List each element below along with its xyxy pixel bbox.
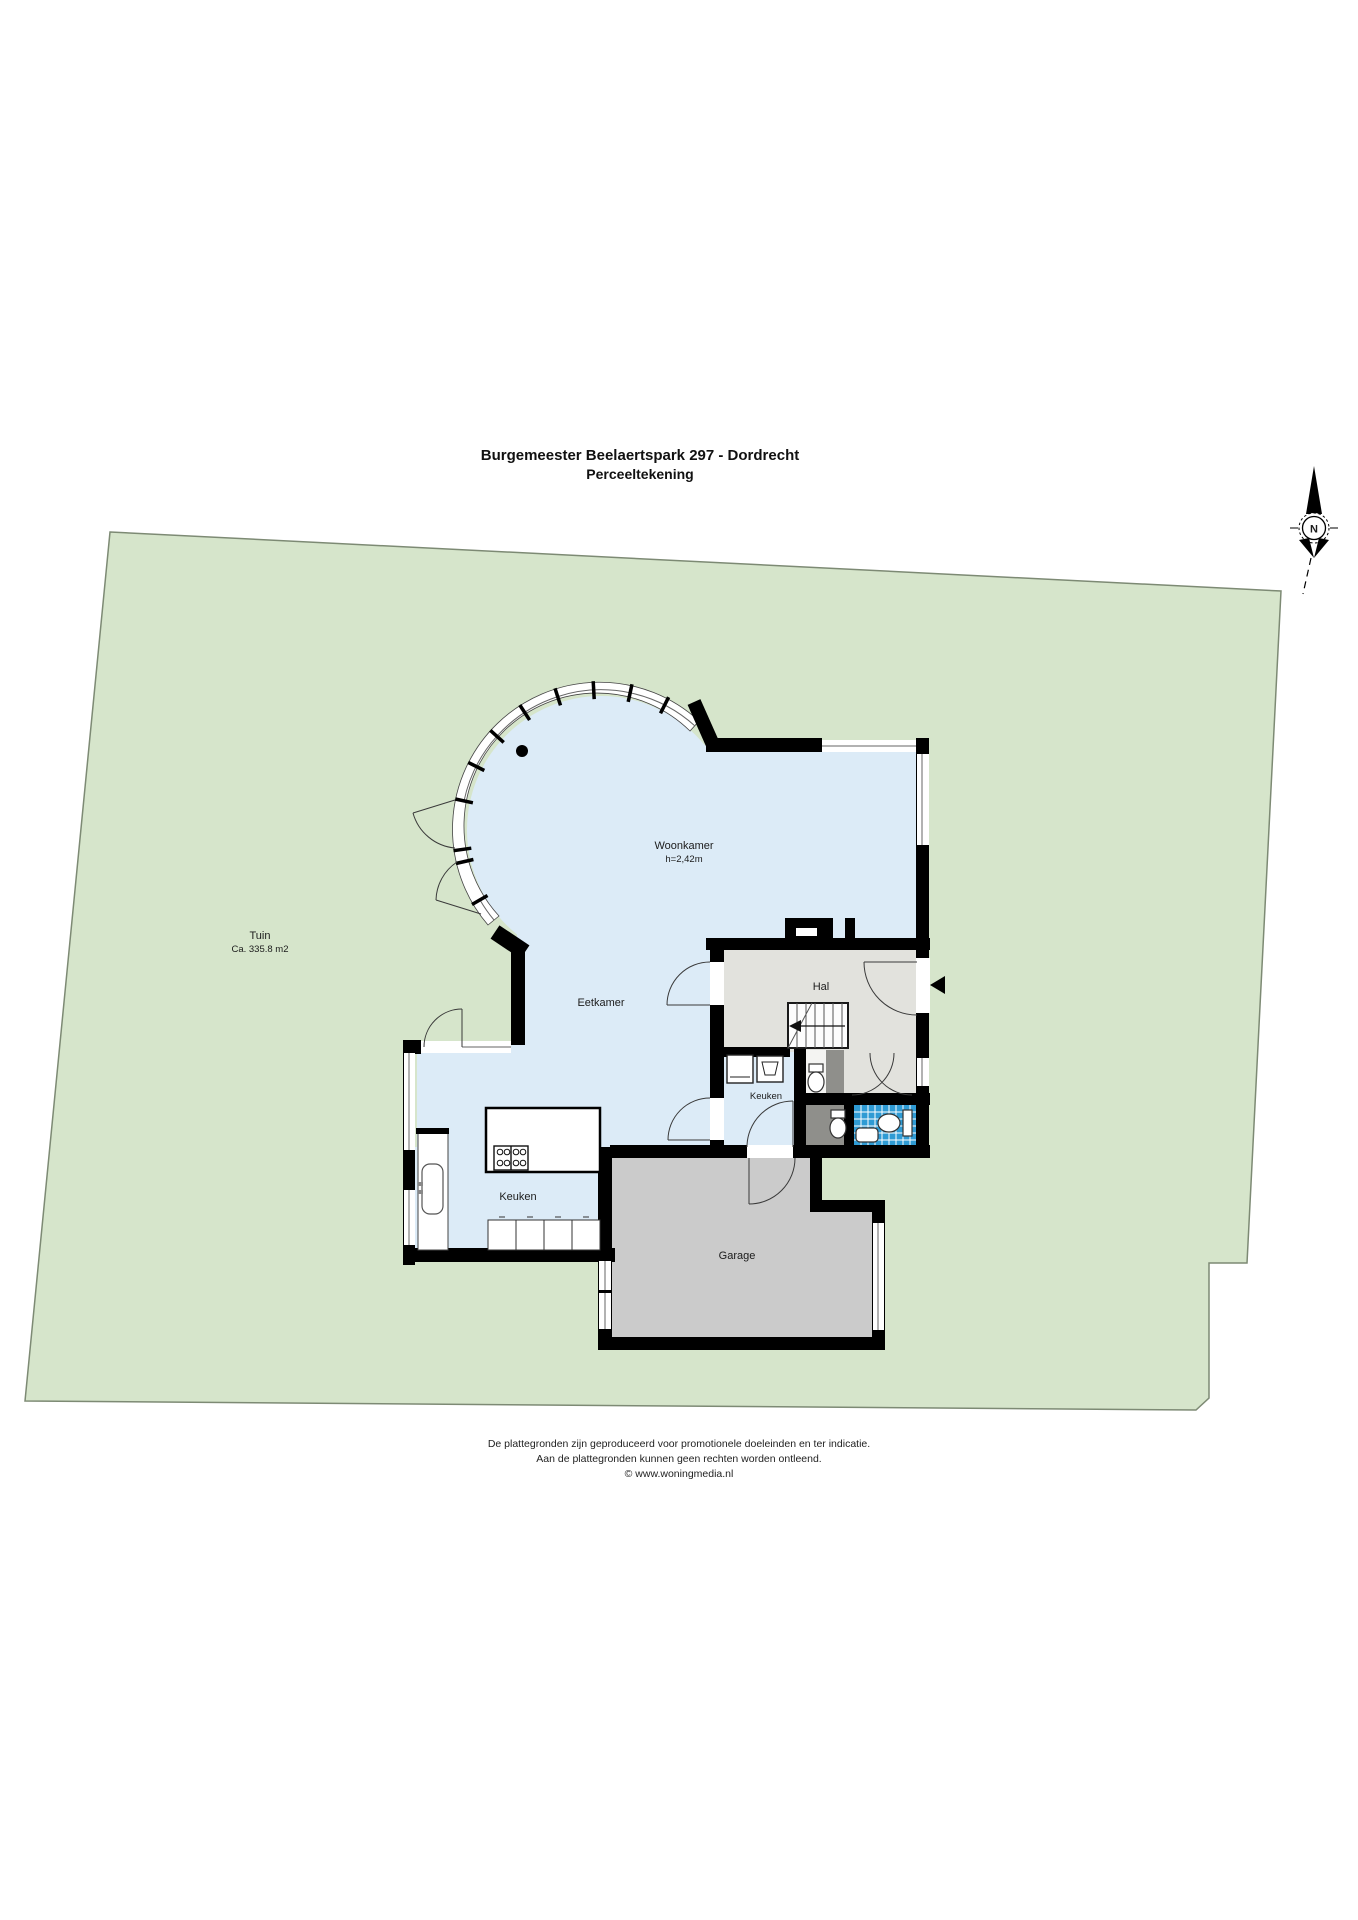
compass-north-icon: N bbox=[1290, 466, 1338, 594]
room-woonkamer bbox=[517, 745, 917, 945]
room-eetkamer-upper bbox=[517, 938, 710, 1052]
kitchen-island bbox=[486, 1108, 600, 1172]
closet-1 bbox=[826, 1050, 844, 1095]
label-woonkamer: Woonkamer bbox=[654, 840, 713, 852]
drawing-type-title: Perceeltekening bbox=[0, 465, 1280, 483]
label-keuken: Keuken bbox=[499, 1191, 536, 1203]
label-tuin-area: Ca. 335.8 m2 bbox=[231, 944, 288, 955]
floorplan-page: Burgemeester Beelaertspark 297 - Dordrec… bbox=[0, 0, 1358, 1920]
disclaimer-line-1: De plattegronden zijn geproduceerd voor … bbox=[0, 1437, 1358, 1452]
stub-notch bbox=[796, 928, 817, 936]
column-dot bbox=[516, 745, 528, 757]
kitchen-counter bbox=[416, 1128, 449, 1250]
basin-icon bbox=[762, 1062, 778, 1075]
stairs bbox=[788, 1003, 848, 1048]
disclaimer: De plattegronden zijn geproduceerd voor … bbox=[0, 1437, 1358, 1482]
sink-icon bbox=[422, 1164, 443, 1214]
floorplan-svg: Tuin Ca. 335.8 m2 Woonkamer h=2,42m Eetk… bbox=[0, 0, 1358, 1920]
kitchen-cabinets bbox=[488, 1217, 600, 1250]
compass-label: N bbox=[1310, 524, 1318, 536]
label-hal: Hal bbox=[813, 981, 830, 993]
shower-tray-icon bbox=[856, 1128, 878, 1142]
address-title: Burgemeester Beelaertspark 297 - Dordrec… bbox=[0, 446, 1280, 465]
label-woonkamer-height: h=2,42m bbox=[665, 854, 702, 865]
hob-icon bbox=[494, 1146, 528, 1170]
disclaimer-line-2: Aan de plattegronden kunnen geen rechten… bbox=[0, 1452, 1358, 1467]
label-eetkamer: Eetkamer bbox=[577, 997, 624, 1009]
disclaimer-line-3: © www.woningmedia.nl bbox=[0, 1467, 1358, 1482]
label-keuken-mid: Keuken bbox=[750, 1091, 782, 1102]
label-tuin: Tuin bbox=[250, 930, 271, 942]
page-title: Burgemeester Beelaertspark 297 - Dordrec… bbox=[0, 446, 1280, 483]
appliance-icon bbox=[727, 1055, 753, 1083]
label-garage: Garage bbox=[719, 1250, 756, 1262]
